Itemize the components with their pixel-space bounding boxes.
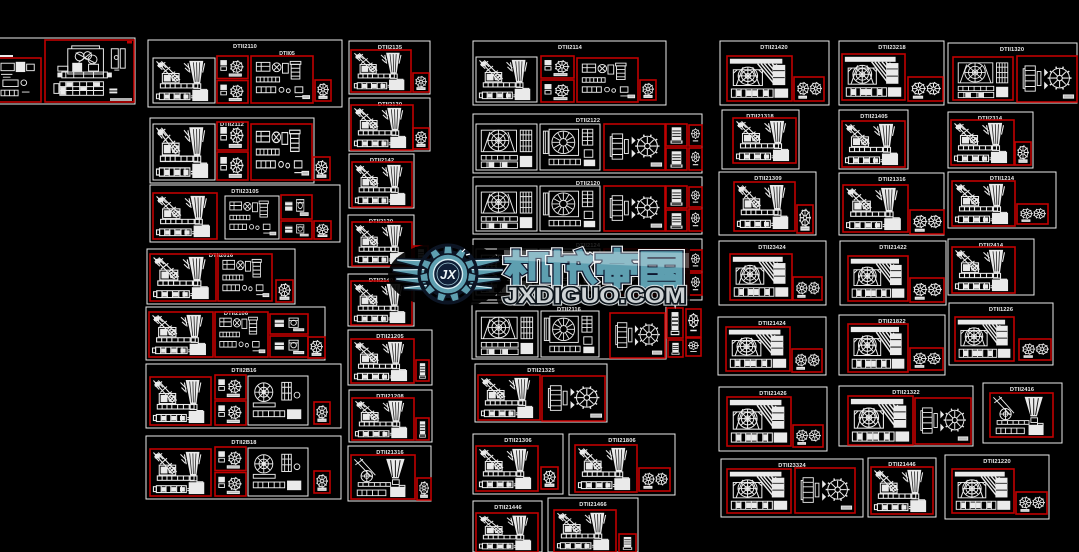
svg-text:DTII21208: DTII21208 [376,394,403,400]
svg-text:DTII1226: DTII1226 [989,307,1013,313]
svg-text:DTII2314: DTII2314 [978,116,1003,122]
svg-text:DTII2414: DTII2414 [979,243,1004,249]
svg-text:DTII21325: DTII21325 [527,368,554,374]
svg-text:DTII21309: DTII21309 [754,176,781,182]
svg-text:DTII21405: DTII21405 [860,114,887,120]
svg-text:DTII21426: DTII21426 [759,391,786,397]
svg-text:DTII21422: DTII21422 [879,245,906,251]
svg-text:DTII21318: DTII21318 [746,114,773,120]
svg-text:DTII2114: DTII2114 [558,45,583,51]
svg-text:JXDIGUO.COM: JXDIGUO.COM [504,283,686,308]
svg-text:DTII2B18: DTII2B18 [231,440,256,446]
svg-text:DTII23218: DTII23218 [878,45,905,51]
svg-text:DTII21424: DTII21424 [758,321,786,327]
svg-text:DTII21322: DTII21322 [892,390,919,396]
svg-text:DTII21220: DTII21220 [983,459,1010,465]
svg-text:DTII21420: DTII21420 [760,45,787,51]
svg-text:DTII21316: DTII21316 [878,177,905,183]
svg-text:DTII2416: DTII2416 [1010,387,1034,393]
svg-text:DTII2122: DTII2122 [576,118,600,124]
svg-text:DTII23424: DTII23424 [758,245,786,251]
svg-text:DTII2B16: DTII2B16 [231,368,256,374]
svg-text:DTII1320: DTII1320 [1000,47,1024,53]
svg-text:DTII2110: DTII2110 [233,44,257,50]
svg-text:DTII23105: DTII23105 [231,189,258,195]
svg-text:DTII21466: DTII21466 [579,502,606,508]
svg-text:DTII2142: DTII2142 [370,158,394,164]
svg-text:DTII21446: DTII21446 [494,505,521,511]
svg-text:DTII21306: DTII21306 [504,438,531,444]
svg-text:DTII21806: DTII21806 [608,438,635,444]
svg-text:JX: JX [440,267,457,282]
